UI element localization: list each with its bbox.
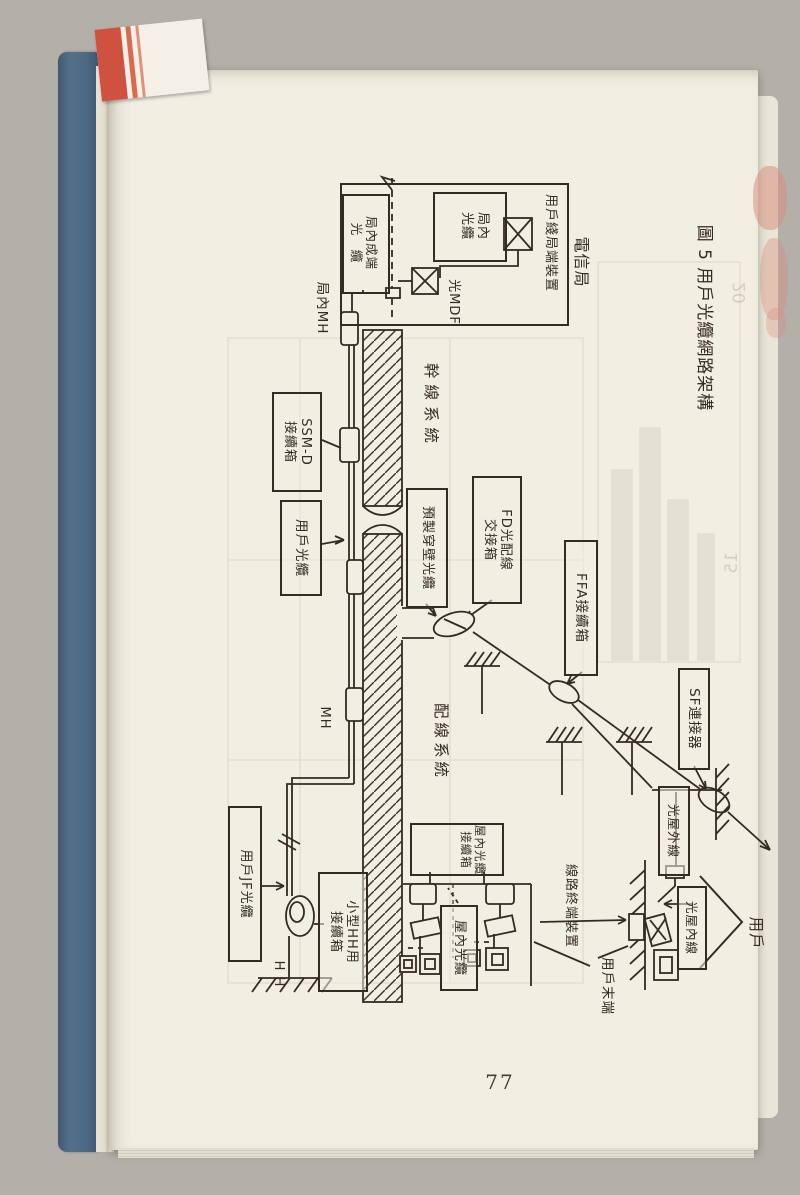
label-telecom-office: 電信局 (570, 233, 592, 291)
label-office-terminal-device: 用戶綫局端裝置 (540, 192, 560, 294)
label-user: 用戶 (746, 906, 766, 960)
figure-linework (0, 0, 800, 1195)
label-office-termination-cable: 局內成端 光 纜 (346, 200, 382, 286)
photographed-book-page: 20 15 (0, 0, 800, 1195)
label-trunk-system: 幹線系統 (420, 356, 442, 456)
label-line-terminal: 線路終端裝置 (560, 853, 580, 959)
ssm-d-splice-box: SSM-D 接續箱 (272, 392, 322, 492)
label-hh: H H (270, 952, 286, 996)
subscriber-cable-box: 用戶光纜 (280, 500, 322, 596)
label-office-mh: 局內MH (313, 272, 331, 344)
prefab-wall-cable-box: 預製穿壁光纜 (406, 488, 448, 608)
label-mh: MH (316, 700, 332, 736)
outdoor-line-box: 光屋外線 (658, 786, 690, 876)
page-number: 77 (470, 1070, 530, 1094)
fd-distribution-box: FD光配線 交接箱 (472, 476, 522, 604)
jf-cable-box: 用戶JF光纜 (228, 806, 262, 962)
small-hh-splice-box: 小型HH用 接續箱 (318, 872, 368, 992)
figure-title: 圖 5 用戶光纜網路架構 (692, 205, 716, 431)
indoor-cable-box: 屋內光纜 (440, 905, 478, 991)
label-distribution-system: 配線系統 (430, 696, 452, 788)
indoor-line-box: 光屋內線 (677, 886, 707, 970)
label-indoor-splice: 屋內光纜 接續箱 (450, 828, 494, 872)
label-optical-mdf: 光MDF (444, 278, 462, 326)
ffa-splice-box: FFA接續箱 (564, 540, 598, 676)
label-office-cable: 局內 光纜 (452, 198, 496, 254)
sf-connector-box: SF連接器 (678, 668, 710, 770)
label-user-terminal: 用戶末端 (598, 946, 616, 1026)
